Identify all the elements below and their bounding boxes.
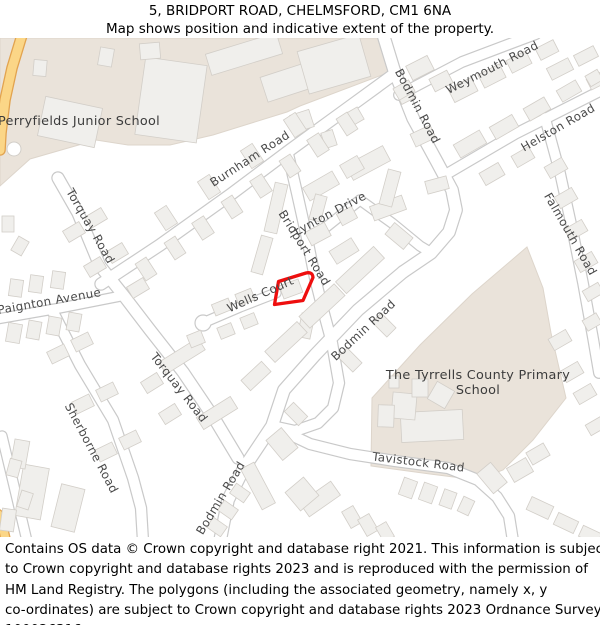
building — [5, 322, 22, 343]
round-structure — [7, 142, 21, 156]
building — [46, 316, 62, 336]
building — [8, 279, 23, 298]
area-label-perryfields-junior-school: Perryfields Junior School — [0, 114, 160, 129]
area-label-tyrrells-county-primary-school: The Tyrrells County Primary — [385, 368, 570, 383]
copyright-line: co-ordinates) are subject to Crown copyr… — [5, 601, 600, 621]
building — [33, 59, 47, 76]
copyright-line: 100026316. — [5, 621, 600, 625]
building — [135, 57, 207, 143]
building — [0, 508, 16, 532]
building — [378, 405, 395, 428]
cul-de-sac-fill-wells-court-end — [196, 316, 210, 330]
map-canvas: Burnham RoadBodmin RoadWeymouth RoadHels… — [0, 38, 600, 537]
map-container: Burnham RoadBodmin RoadWeymouth RoadHels… — [0, 38, 600, 537]
building — [28, 275, 43, 294]
copyright-line: to Crown copyright and database rights 2… — [5, 560, 600, 580]
copyright-notice: Contains OS data © Crown copyright and d… — [0, 537, 600, 625]
copyright-line: Contains OS data © Crown copyright and d… — [5, 540, 600, 560]
area-label-tyrrells-county-primary-school: School — [456, 383, 500, 398]
building — [26, 320, 42, 340]
building — [98, 47, 115, 67]
building — [139, 42, 160, 60]
page-subtitle: Map shows position and indicative extent… — [0, 20, 600, 38]
building — [66, 312, 82, 332]
map-title-block: 5, BRIDPORT ROAD, CHELMSFORD, CM1 6NA Ma… — [0, 0, 600, 38]
page-title: 5, BRIDPORT ROAD, CHELMSFORD, CM1 6NA — [0, 2, 600, 20]
copyright-line: HM Land Registry. The polygons (includin… — [5, 581, 600, 601]
building — [50, 271, 65, 290]
building — [2, 216, 14, 232]
property-map-report: 5, BRIDPORT ROAD, CHELMSFORD, CM1 6NA Ma… — [0, 0, 600, 625]
